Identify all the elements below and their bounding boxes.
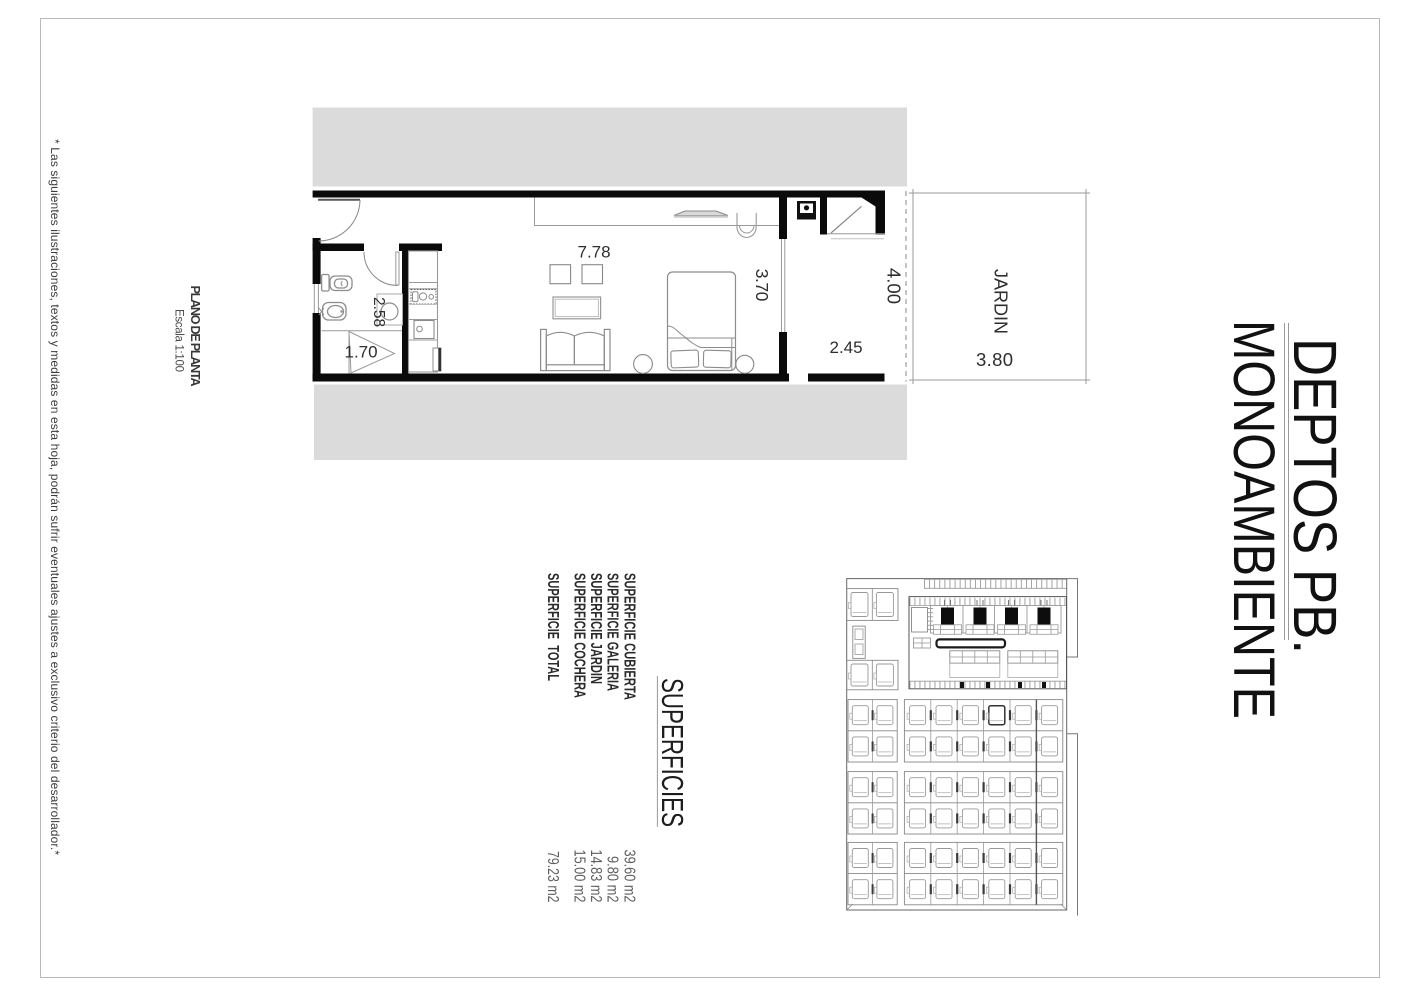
svg-text:2.58: 2.58 <box>370 297 387 327</box>
svg-text:SUPERFICIES: SUPERFICIES <box>655 678 690 827</box>
svg-text:9.80 m2: 9.80 m2 <box>604 856 621 903</box>
svg-text:MONOAMBIENTE: MONOAMBIENTE <box>1221 320 1286 719</box>
svg-text:SUPERFICIE TOTAL: SUPERFICIE TOTAL <box>544 573 561 681</box>
svg-text:SUPERFICIE COCHERA: SUPERFICIE COCHERA <box>570 573 587 698</box>
svg-text:SUPERFICIE GALERIA: SUPERFICIE GALERIA <box>604 573 621 691</box>
svg-text:SUPERFICIE CUBIERTA: SUPERFICIE CUBIERTA <box>621 573 638 700</box>
svg-text:JARDIN: JARDIN <box>991 269 1011 334</box>
svg-text:39.60 m2: 39.60 m2 <box>621 850 638 903</box>
svg-text:4.00: 4.00 <box>884 268 905 304</box>
svg-text:2.45: 2.45 <box>830 338 863 357</box>
svg-text:14.83 m2: 14.83 m2 <box>587 850 604 903</box>
svg-text:PLANO DE PLANTA: PLANO DE PLANTA <box>188 286 202 387</box>
svg-text:1.70: 1.70 <box>345 342 378 361</box>
svg-text:7.78: 7.78 <box>578 243 611 262</box>
svg-text:Escala 1:100: Escala 1:100 <box>173 309 185 372</box>
svg-text:3.80: 3.80 <box>976 349 1013 370</box>
svg-text:DEPTOS PB.: DEPTOS PB. <box>1281 338 1349 654</box>
svg-text:15.00 m2: 15.00 m2 <box>570 850 587 903</box>
svg-text:79.23 m2: 79.23 m2 <box>544 851 561 903</box>
svg-text:* Las siguientes ilustraciones: * Las siguientes ilustraciones, textos y… <box>48 139 62 855</box>
svg-text:SUPERFICIE JARDIN: SUPERFICIE JARDIN <box>587 573 604 684</box>
svg-text:3.70: 3.70 <box>752 269 772 302</box>
